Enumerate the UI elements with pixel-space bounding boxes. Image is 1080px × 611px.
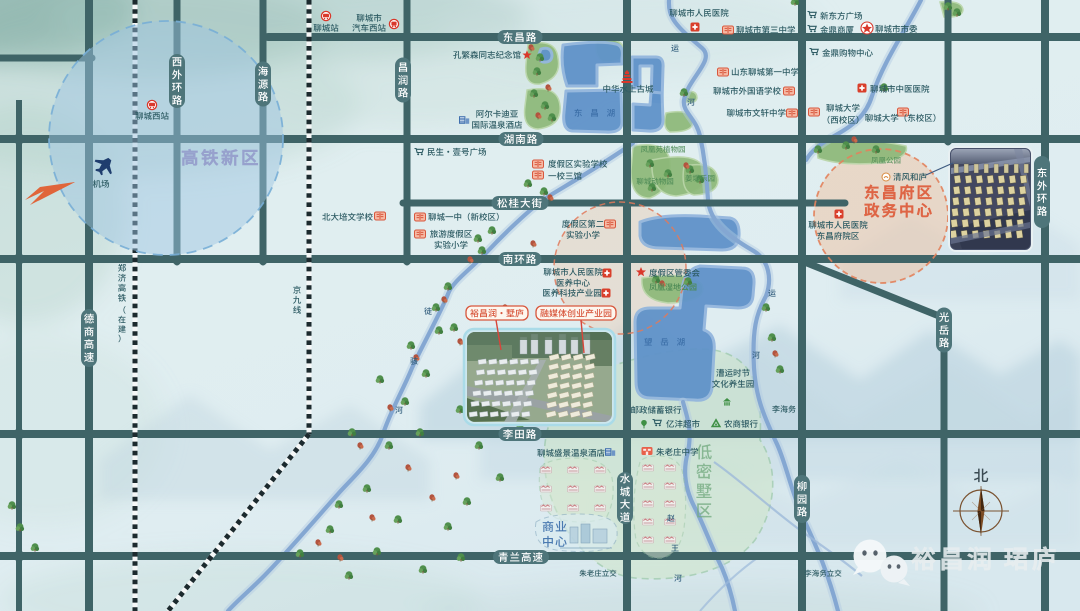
svg-text:凤凰湿地公园: 凤凰湿地公园 bbox=[649, 282, 697, 293]
svg-text:金鼎商厦: 金鼎商厦 bbox=[820, 24, 855, 36]
svg-text:朱老庄中学: 朱老庄中学 bbox=[656, 446, 699, 458]
svg-text:湖南路: 湖南路 bbox=[504, 132, 539, 147]
svg-text:中华水上古城: 中华水上古城 bbox=[602, 83, 654, 95]
svg-text:河: 河 bbox=[687, 97, 695, 108]
svg-text:李田路: 李田路 bbox=[503, 427, 538, 442]
svg-text:李海务: 李海务 bbox=[772, 404, 796, 415]
svg-text:赵: 赵 bbox=[667, 513, 675, 524]
svg-text:河: 河 bbox=[674, 573, 682, 584]
svg-text:聊城动物园: 聊城动物园 bbox=[636, 176, 674, 187]
svg-text:中心: 中心 bbox=[542, 533, 568, 550]
svg-text:朱老庄立交: 朱老庄立交 bbox=[579, 568, 617, 579]
svg-text:铁: 铁 bbox=[118, 292, 127, 304]
svg-text:文化养生园: 文化养生园 bbox=[712, 378, 755, 390]
svg-text:李海务立交: 李海务立交 bbox=[804, 568, 842, 579]
svg-text:松桂大街: 松桂大街 bbox=[497, 196, 543, 211]
svg-text:聊城市中医医院: 聊城市中医医院 bbox=[870, 83, 930, 95]
svg-text:聊城大学（东校区）: 聊城大学（东校区） bbox=[865, 112, 942, 124]
svg-text:东昌路: 东昌路 bbox=[503, 30, 538, 45]
svg-text:东 昌 湖: 东 昌 湖 bbox=[574, 107, 618, 119]
svg-text:凤凰苑植物园: 凤凰苑植物园 bbox=[641, 144, 686, 155]
svg-text:线: 线 bbox=[293, 304, 302, 316]
svg-text:路: 路 bbox=[398, 85, 409, 100]
svg-text:王: 王 bbox=[671, 543, 679, 554]
svg-text:速: 速 bbox=[84, 350, 95, 365]
svg-text:孔繁森同志纪念馆: 孔繁森同志纪念馆 bbox=[453, 49, 522, 61]
svg-text:运: 运 bbox=[671, 43, 679, 54]
svg-text:聊城市文轩中学: 聊城市文轩中学 bbox=[726, 107, 786, 119]
svg-text:政务中心: 政务中心 bbox=[864, 199, 934, 221]
svg-text:路: 路 bbox=[172, 93, 183, 108]
svg-text:新东方广场: 新东方广场 bbox=[820, 10, 863, 22]
svg-text:聊城市第三中学: 聊城市第三中学 bbox=[736, 24, 796, 36]
svg-text:青兰高速: 青兰高速 bbox=[498, 550, 544, 565]
svg-text:高铁新区: 高铁新区 bbox=[181, 145, 261, 170]
svg-text:南环路: 南环路 bbox=[503, 252, 538, 267]
svg-text:望 岳 湖: 望 岳 湖 bbox=[644, 336, 688, 348]
svg-text:民生·壹号广场: 民生·壹号广场 bbox=[427, 146, 487, 158]
svg-text:山东聊城第一中学: 山东聊城第一中学 bbox=[731, 66, 800, 78]
svg-text:路: 路 bbox=[797, 504, 808, 519]
svg-text:聊城站: 聊城站 bbox=[313, 22, 339, 34]
svg-text:聊城市外国语学校: 聊城市外国语学校 bbox=[713, 85, 782, 97]
svg-text:运: 运 bbox=[768, 288, 776, 299]
svg-text:实验小学: 实验小学 bbox=[566, 229, 601, 241]
svg-text:路: 路 bbox=[939, 335, 950, 350]
svg-text:道: 道 bbox=[620, 510, 631, 525]
svg-text:一校三馆: 一校三馆 bbox=[548, 170, 583, 182]
svg-text:）: ） bbox=[118, 334, 126, 345]
svg-text:聊城西站: 聊城西站 bbox=[135, 110, 170, 122]
svg-text:金鼎购物中心: 金鼎购物中心 bbox=[822, 47, 874, 59]
svg-text:区: 区 bbox=[696, 498, 713, 522]
svg-text:邮政储蓄银行: 邮政储蓄银行 bbox=[630, 404, 682, 416]
svg-text:裕昌润·墅庐: 裕昌润·墅庐 bbox=[470, 307, 524, 320]
svg-text:河: 河 bbox=[395, 405, 403, 416]
svg-text:北: 北 bbox=[973, 465, 988, 486]
svg-text:路: 路 bbox=[1037, 204, 1048, 219]
svg-text:东昌府院区: 东昌府院区 bbox=[817, 230, 860, 242]
svg-text:徒: 徒 bbox=[424, 306, 432, 317]
svg-text:姜堤乐园: 姜堤乐园 bbox=[685, 173, 715, 184]
svg-text:汽车西站: 汽车西站 bbox=[352, 22, 387, 34]
svg-text:聊城大学: 聊城大学 bbox=[826, 102, 861, 114]
svg-text:（西校区）: （西校区） bbox=[822, 114, 865, 126]
svg-text:度假区实验学校: 度假区实验学校 bbox=[548, 158, 608, 170]
svg-text:农商银行: 农商银行 bbox=[724, 418, 759, 430]
svg-text:路: 路 bbox=[258, 89, 269, 104]
svg-text:机场: 机场 bbox=[92, 178, 110, 190]
svg-text:国际温泉酒店: 国际温泉酒店 bbox=[471, 119, 523, 131]
svg-text:聊城一中（新校区）: 聊城一中（新校区） bbox=[428, 211, 505, 223]
svg-text:度假区管委会: 度假区管委会 bbox=[649, 267, 701, 279]
svg-text:亿沣超市: 亿沣超市 bbox=[666, 418, 701, 430]
svg-text:凤凰公园: 凤凰公园 bbox=[871, 155, 901, 166]
svg-text:骇: 骇 bbox=[410, 356, 418, 367]
svg-text:裕昌润 珺庐: 裕昌润 珺庐 bbox=[910, 540, 1060, 576]
svg-text:聊城市人民医院: 聊城市人民医院 bbox=[669, 7, 729, 19]
svg-text:聊城盛景温泉酒店: 聊城盛景温泉酒店 bbox=[537, 447, 606, 459]
svg-text:清风和庐: 清风和庐 bbox=[893, 171, 928, 183]
svg-text:实验小学: 实验小学 bbox=[434, 239, 469, 251]
svg-text:医养科技产业园: 医养科技产业园 bbox=[542, 287, 602, 299]
svg-text:北大培文学校: 北大培文学校 bbox=[322, 211, 374, 223]
svg-text:聊城市市委: 聊城市市委 bbox=[875, 23, 918, 35]
svg-text:融媒体创业产业园: 融媒体创业产业园 bbox=[540, 307, 612, 320]
svg-text:河: 河 bbox=[752, 350, 760, 361]
